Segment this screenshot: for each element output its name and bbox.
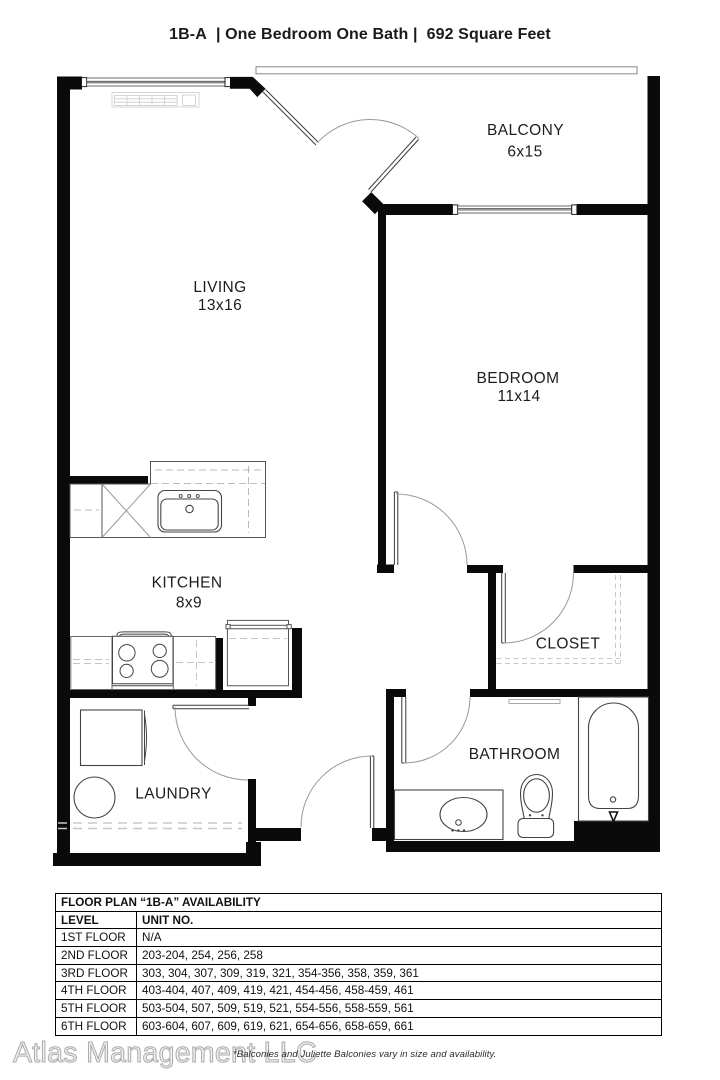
svg-text:11x14: 11x14 xyxy=(497,388,540,405)
svg-text:8x9: 8x9 xyxy=(176,595,202,612)
svg-text:LIVING: LIVING xyxy=(193,279,246,296)
svg-text:LAUNDRY: LAUNDRY xyxy=(135,786,212,803)
svg-text:KITCHEN: KITCHEN xyxy=(152,575,223,592)
svg-text:6x15: 6x15 xyxy=(507,144,542,161)
svg-text:13x16: 13x16 xyxy=(198,297,242,314)
svg-text:BALCONY: BALCONY xyxy=(487,122,564,139)
svg-text:CLOSET: CLOSET xyxy=(536,636,601,653)
svg-text:BEDROOM: BEDROOM xyxy=(477,370,560,387)
svg-text:BATHROOM: BATHROOM xyxy=(469,746,561,763)
